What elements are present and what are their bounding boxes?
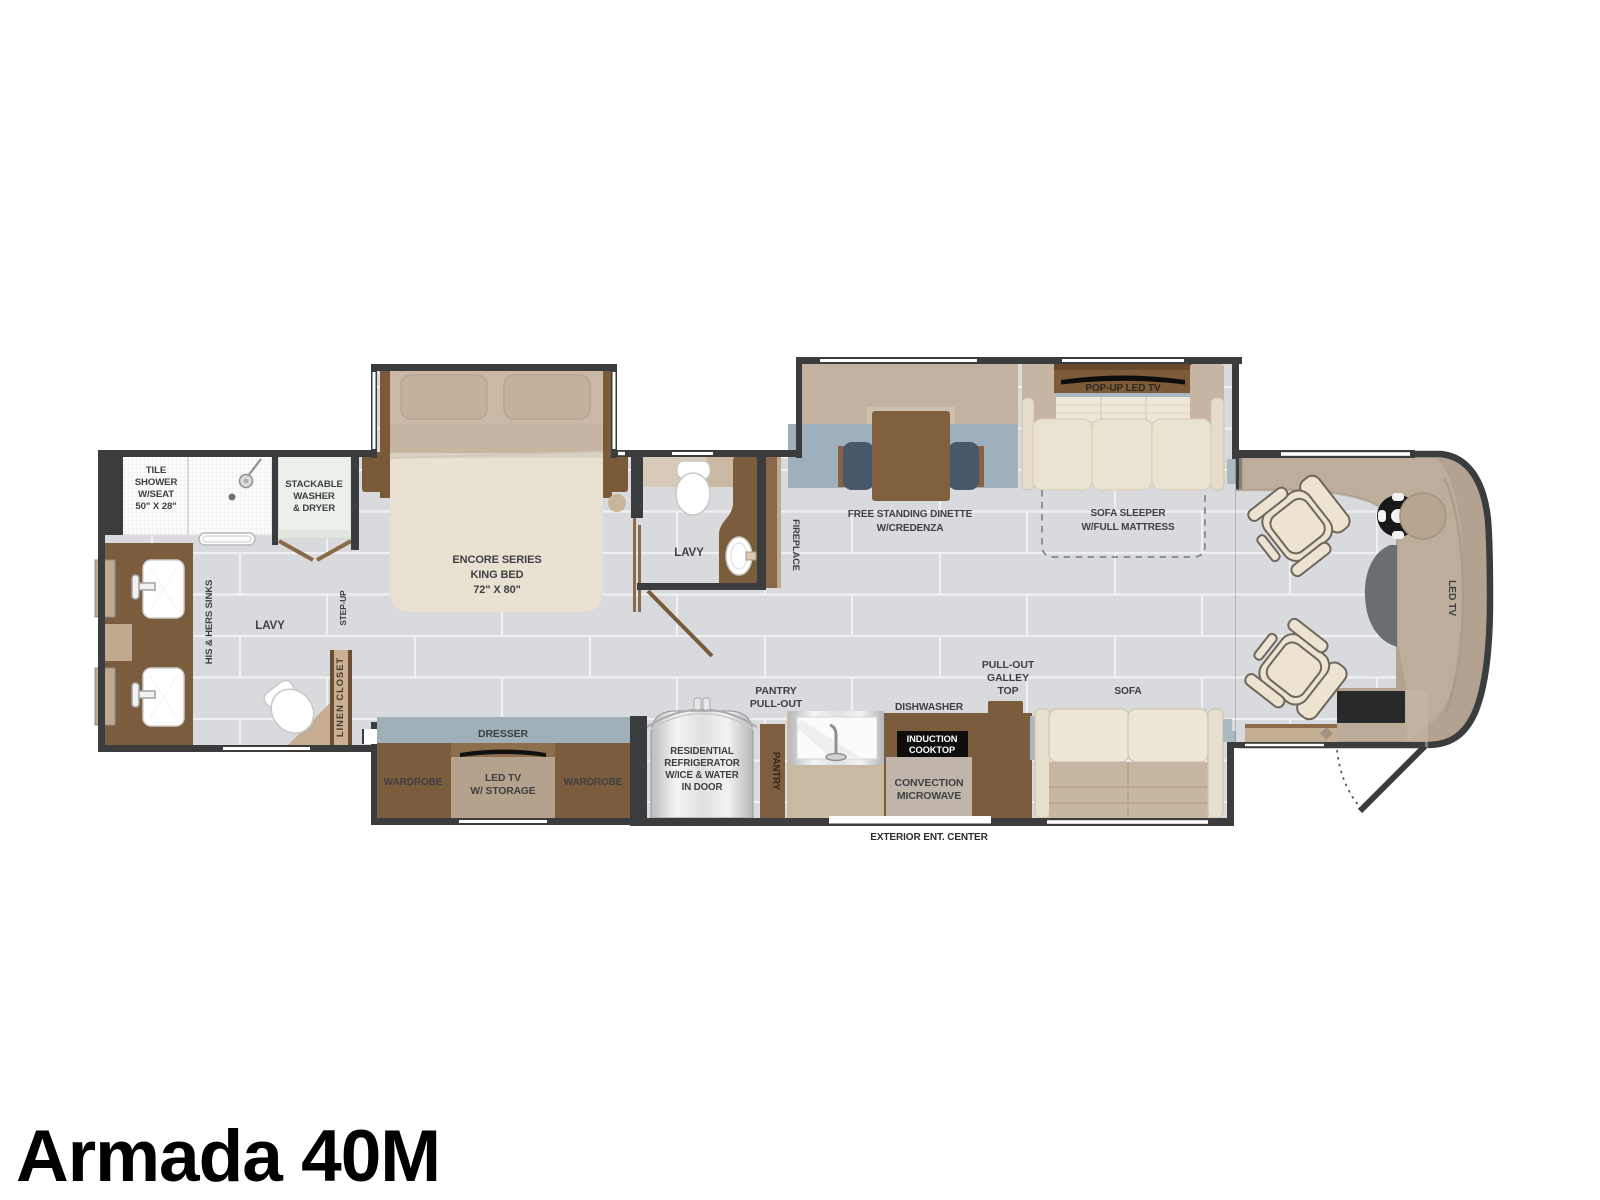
svg-text:RESIDENTIAL: RESIDENTIAL bbox=[670, 746, 734, 757]
svg-text:LED TV: LED TV bbox=[1446, 580, 1457, 616]
svg-text:FIREPLACE: FIREPLACE bbox=[791, 519, 801, 571]
svg-text:CONVECTION: CONVECTION bbox=[894, 777, 963, 789]
svg-text:POP-UP LED TV: POP-UP LED TV bbox=[1085, 383, 1161, 394]
svg-text:WARDROBE: WARDROBE bbox=[564, 777, 623, 788]
svg-text:IN DOOR: IN DOOR bbox=[682, 782, 723, 793]
svg-text:STACKABLE: STACKABLE bbox=[285, 479, 343, 490]
svg-text:STEP-UP: STEP-UP bbox=[338, 590, 348, 626]
svg-text:REFRIGERATOR: REFRIGERATOR bbox=[664, 758, 740, 769]
svg-text:ENCORE SERIES: ENCORE SERIES bbox=[452, 554, 541, 566]
svg-text:WASHER: WASHER bbox=[293, 491, 335, 502]
svg-text:SOFA SLEEPER: SOFA SLEEPER bbox=[1090, 508, 1166, 519]
svg-text:SHOWER: SHOWER bbox=[135, 477, 178, 488]
svg-text:MICROWAVE: MICROWAVE bbox=[897, 790, 961, 802]
svg-text:KING BED: KING BED bbox=[471, 569, 524, 581]
svg-text:& DRYER: & DRYER bbox=[293, 503, 335, 514]
svg-text:LAVY: LAVY bbox=[674, 547, 704, 559]
svg-text:W/ICE & WATER: W/ICE & WATER bbox=[665, 770, 738, 781]
svg-text:FREE STANDING DINETTE: FREE STANDING DINETTE bbox=[848, 509, 973, 520]
svg-text:TOP: TOP bbox=[997, 685, 1018, 697]
svg-text:GALLEY: GALLEY bbox=[987, 672, 1029, 684]
svg-text:W/SEAT: W/SEAT bbox=[138, 489, 174, 500]
svg-text:INDUCTION: INDUCTION bbox=[907, 734, 958, 744]
svg-text:EXTERIOR ENT. CENTER: EXTERIOR ENT. CENTER bbox=[870, 832, 988, 843]
svg-text:DISHWASHER: DISHWASHER bbox=[895, 702, 964, 713]
svg-text:HIS & HERS SINKS: HIS & HERS SINKS bbox=[204, 580, 215, 664]
svg-text:TILE: TILE bbox=[146, 465, 167, 476]
svg-text:LAVY: LAVY bbox=[255, 620, 285, 632]
svg-text:50" X 28": 50" X 28" bbox=[135, 501, 176, 512]
svg-text:72" X 80": 72" X 80" bbox=[473, 584, 520, 596]
svg-text:COOKTOP: COOKTOP bbox=[909, 745, 955, 755]
svg-text:SOFA: SOFA bbox=[1114, 686, 1142, 697]
svg-text:PANTRY: PANTRY bbox=[770, 752, 781, 791]
svg-text:W/FULL MATTRESS: W/FULL MATTRESS bbox=[1081, 522, 1175, 533]
svg-text:PANTRY: PANTRY bbox=[755, 685, 796, 697]
svg-text:WARDROBE: WARDROBE bbox=[384, 777, 443, 788]
svg-text:W/ STORAGE: W/ STORAGE bbox=[470, 786, 535, 797]
svg-text:LED TV: LED TV bbox=[485, 773, 521, 784]
svg-text:W/CREDENZA: W/CREDENZA bbox=[877, 523, 944, 534]
svg-text:PULL-OUT: PULL-OUT bbox=[982, 659, 1035, 671]
svg-text:LINEN CLOSET: LINEN CLOSET bbox=[335, 657, 345, 737]
svg-text:PULL-OUT: PULL-OUT bbox=[750, 698, 803, 710]
svg-text:Armada 40M: Armada 40M bbox=[16, 1116, 440, 1197]
svg-text:DRESSER: DRESSER bbox=[478, 728, 529, 740]
